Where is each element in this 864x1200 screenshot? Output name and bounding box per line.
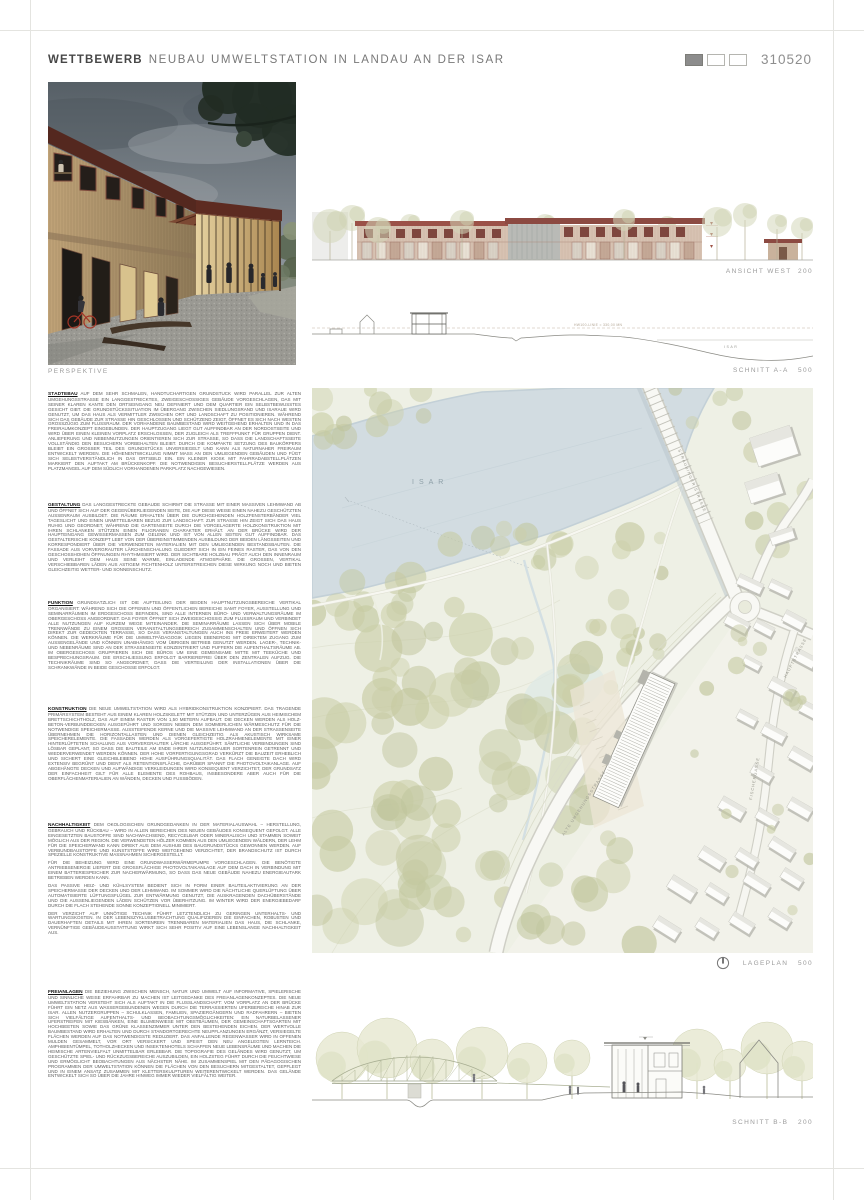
title-project-name: NEUBAU UMWELTSTATION IN LANDAU AN DER IS… — [149, 54, 505, 66]
board-title: WETTBEWERBNEUBAU UMWELTSTATION IN LANDAU… — [48, 54, 505, 66]
river-label-section: ISAR — [724, 345, 738, 349]
text-block-gestaltung: GESTALTUNG DAS LANGGESTRECKTE GEBÄUDE SC… — [48, 503, 301, 597]
text-block-funktion: FUNKTION GRUNDSÄTZLICH IST DIE AUFTEILUN… — [48, 601, 301, 703]
building-section-b — [604, 1037, 690, 1098]
competition-board: WETTBEWERBNEUBAU UMWELTSTATION IN LANDAU… — [0, 0, 864, 1200]
site-plan: ISAR STRAUBINGER STRASSE ALTE UMGEHUNGSS… — [312, 388, 813, 953]
legend-swatch-empty-2 — [729, 54, 747, 66]
frame-line-left — [30, 0, 31, 1200]
text-block-nachhaltigkeit: NACHHALTIGKEIT DEM ÖKOLOGISCHEN GRUNDGED… — [48, 823, 301, 985]
sitting-person — [158, 297, 164, 316]
section-b-b — [312, 1003, 813, 1115]
text-block-konstruktion: KONSTRUKTION DIE NEUE UMWELTSTATION WIRD… — [48, 707, 301, 819]
section-a-a: HW100-LINIE = 330,00 MN ISAR — [312, 298, 813, 364]
elevation-caption: ANSICHT WEST 200 — [312, 268, 813, 275]
header-right: 310520 — [681, 52, 812, 67]
legend-swatch-filled — [685, 54, 703, 66]
title-project-type: WETTBEWERB — [48, 54, 143, 66]
text-block-staedtebau: STÄDTEBAU AUF DEM SEHR SCHMALEN, HANDTUC… — [48, 392, 301, 498]
frame-line-top — [0, 30, 864, 31]
text-block-freianlagen: FREIANLAGEN DIE BEZIEHUNG ZWISCHEN MENSC… — [48, 990, 301, 1112]
elevation-west — [312, 192, 813, 272]
river-label: ISAR — [412, 479, 448, 486]
entry-code: 310520 — [761, 52, 812, 67]
frame-line-right — [833, 0, 834, 1200]
legend-swatch-empty-1 — [707, 54, 725, 66]
frame-line-bottom — [0, 1168, 864, 1169]
section-a-caption: SCHNITT A-A 500 — [312, 367, 813, 374]
siteplan-caption: LAGEPLAN 500 — [743, 960, 813, 967]
elevation-building — [355, 218, 705, 260]
siteplan-caption-row: LAGEPLAN 500 — [312, 956, 813, 970]
section-b-caption: SCHNITT B-B 200 — [312, 1119, 813, 1126]
north-arrow-icon — [716, 956, 735, 970]
terrain-profile — [312, 315, 813, 360]
kiosk — [764, 239, 802, 260]
perspective-rendering — [48, 82, 296, 365]
board-header: WETTBEWERBNEUBAU UMWELTSTATION IN LANDAU… — [48, 52, 812, 67]
building-section — [410, 313, 448, 334]
perspective-caption: PERSPEKTIVE — [48, 368, 109, 375]
flood-line-label: HW100-LINIE = 330,00 MN — [574, 323, 623, 327]
